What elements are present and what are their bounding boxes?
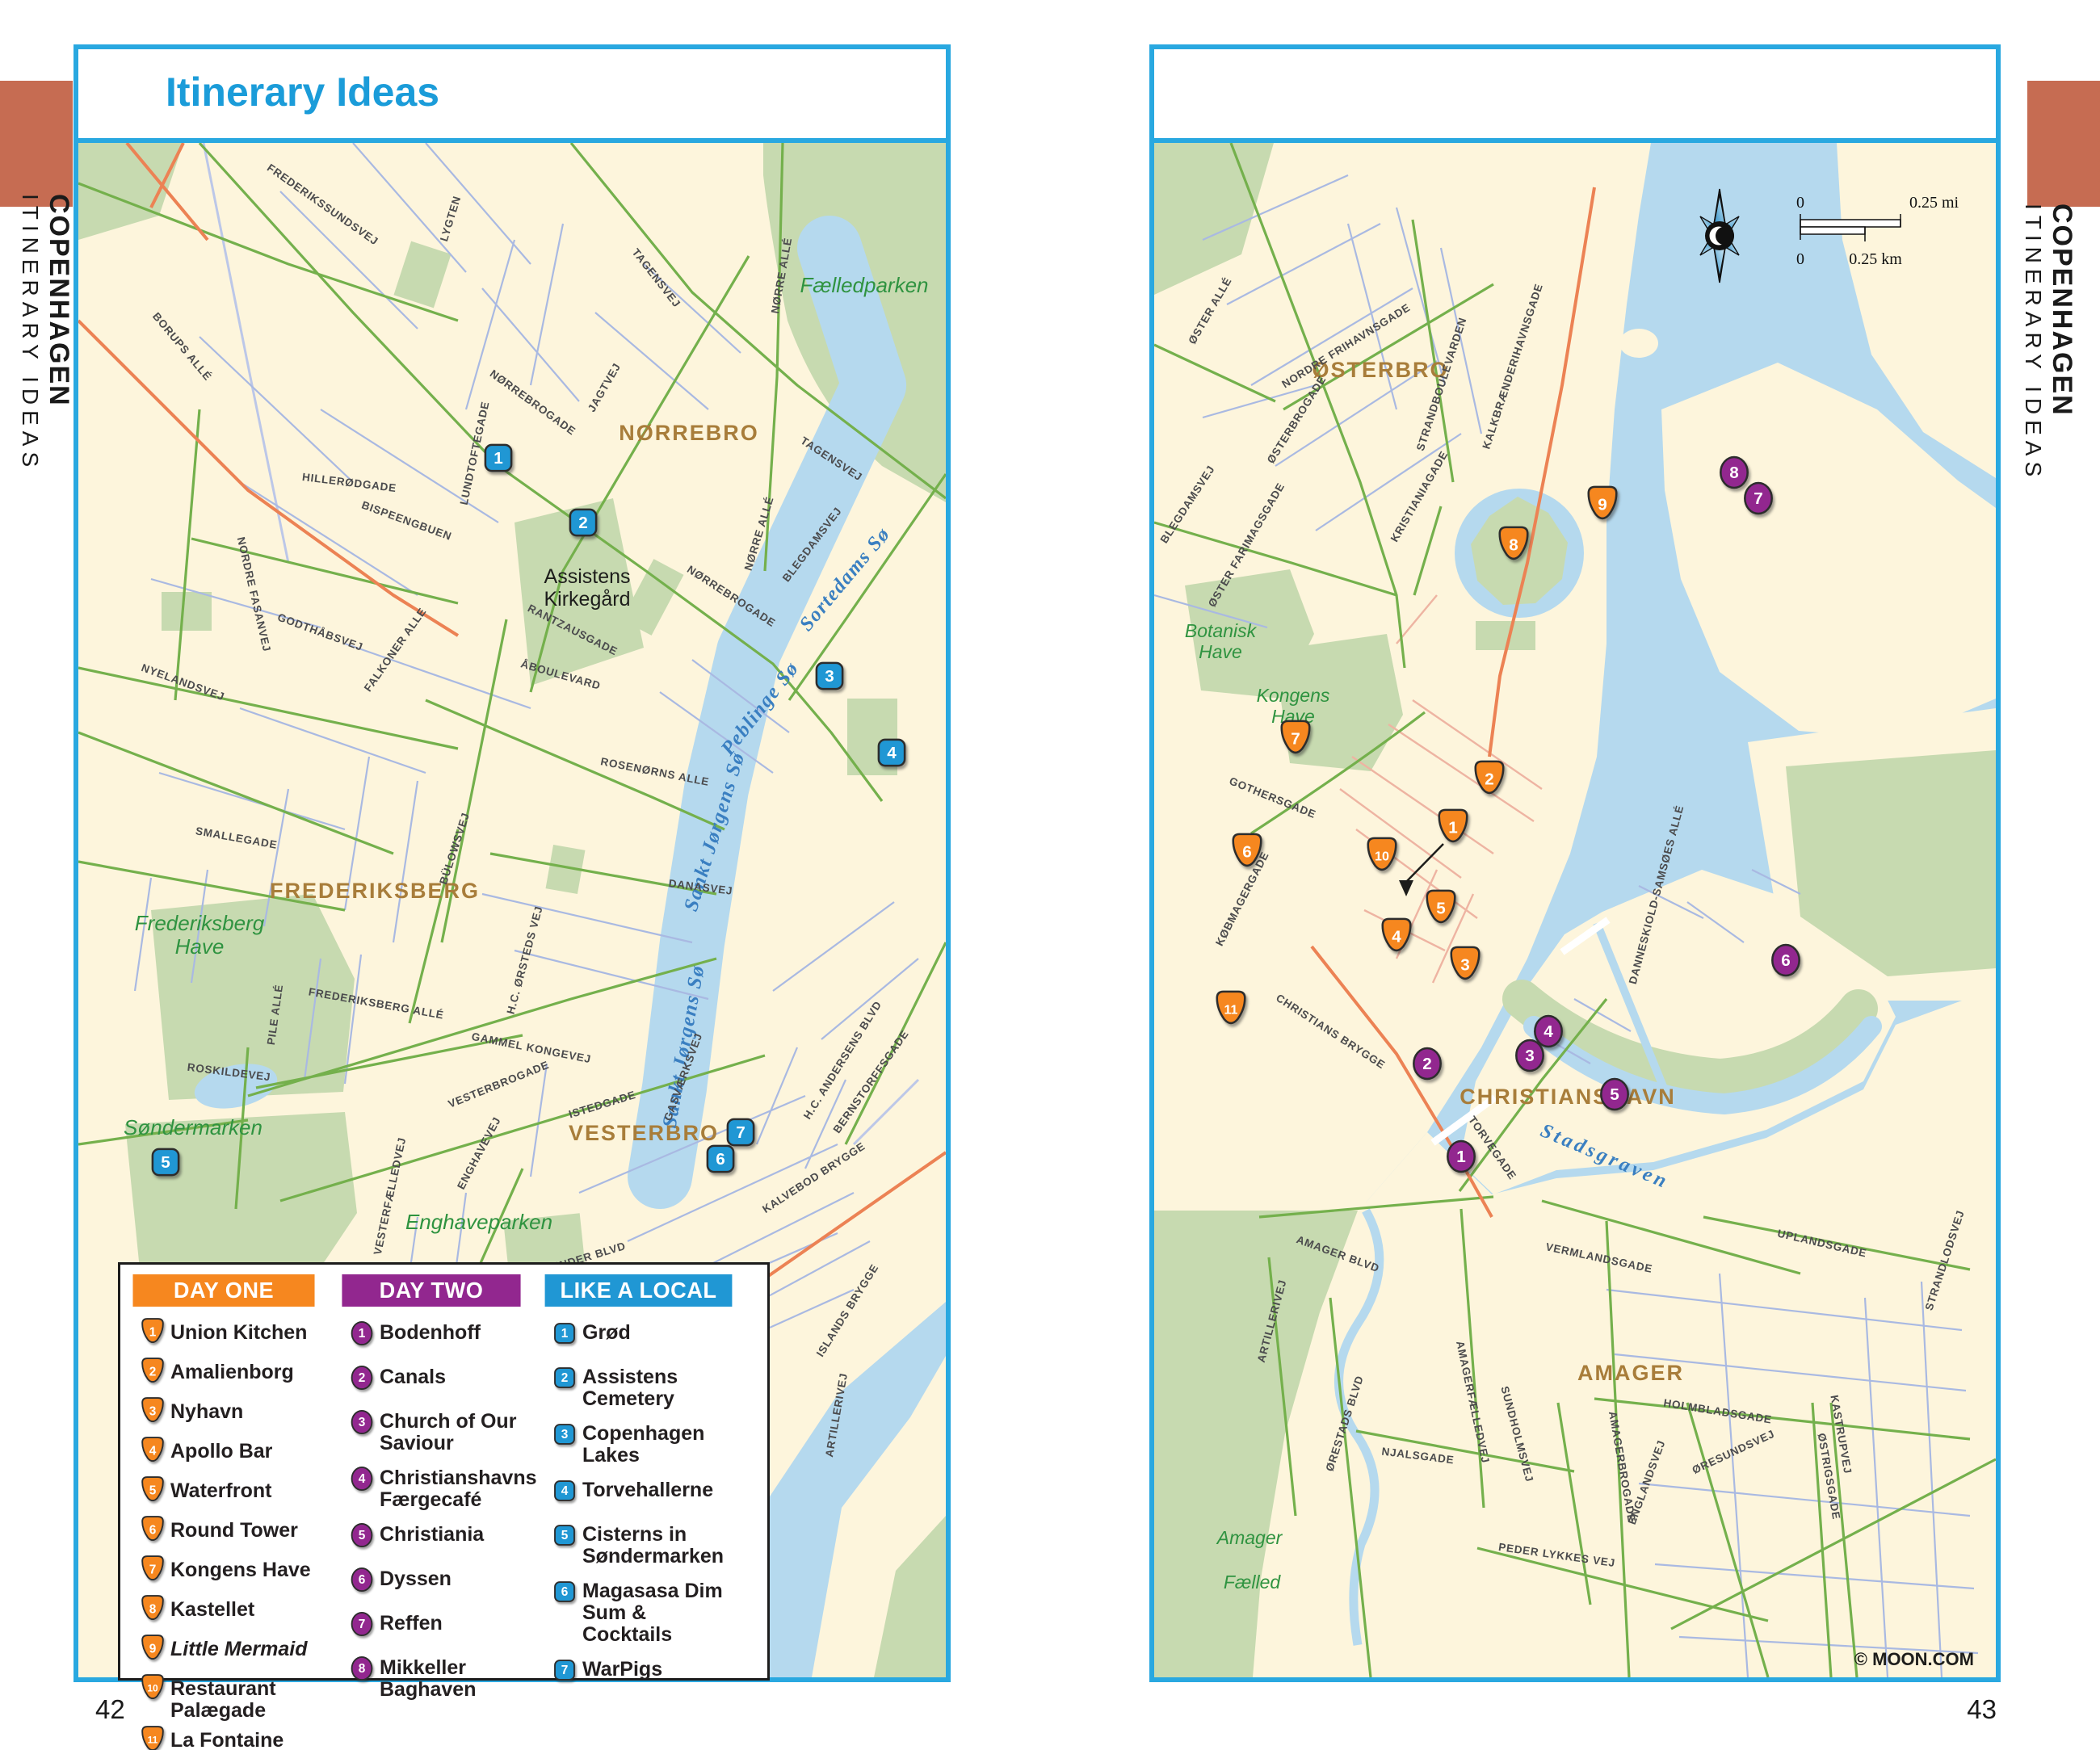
marker-day2-7: 7: [352, 1613, 372, 1635]
left-edge-tab: [0, 81, 73, 207]
left-caption-section: ITINERARY IDEAS: [17, 194, 44, 472]
svg-text:11: 11: [1224, 1002, 1237, 1017]
legend-item: 3Nyhavn: [138, 1395, 317, 1433]
right-page-frame: ØSTERBROCHRISTIANSHAVNAMAGERBotaniskHave…: [1149, 44, 2001, 1682]
map-label-place: AssistensKirkegård: [544, 565, 631, 611]
legend-marker-day1-icon: 9: [138, 1634, 170, 1670]
legend-column-day1: DAY ONE1Union Kitchen2Amalienborg3Nyhavn…: [130, 1274, 317, 1672]
right-page-titleband: [1154, 49, 1996, 143]
marker-day2-6: 6: [352, 1568, 372, 1591]
marker-local-6: 6: [555, 1582, 574, 1601]
legend-item: 7Kongens Have: [138, 1554, 317, 1591]
legend-marker-local-icon: 3: [550, 1418, 582, 1454]
map-shape: [162, 592, 212, 631]
legend-item: 2Assistens Cemetery: [550, 1361, 735, 1410]
svg-text:5: 5: [1610, 1085, 1619, 1104]
page-title: Itinerary Ideas: [166, 69, 439, 115]
right-caption-city: COPENHAGEN: [2047, 204, 2077, 482]
legend-marker-day2-icon: 1: [347, 1317, 380, 1353]
svg-text:3: 3: [561, 1428, 569, 1442]
svg-text:11: 11: [148, 1735, 158, 1746]
scale-km-label: 0.25 km: [1849, 250, 1902, 268]
right-edge-caption: COPENHAGEN ITINERARY IDEAS: [2020, 204, 2077, 482]
svg-text:4: 4: [1392, 928, 1401, 946]
legend-item-label: Assistens Cemetery: [582, 1361, 735, 1410]
legend-items-day2: 1Bodenhoff2Canals3Church of Our Saviour4…: [339, 1307, 523, 1701]
legend-item-label: Waterfront: [170, 1475, 271, 1502]
svg-text:5: 5: [359, 1529, 366, 1542]
legend-marker-day2-icon: 5: [347, 1519, 380, 1555]
svg-text:4: 4: [359, 1472, 366, 1486]
svg-text:3: 3: [149, 1404, 157, 1418]
legend-item: 1Grød: [550, 1316, 735, 1353]
svg-text:9: 9: [149, 1642, 157, 1656]
legend-item: 6Dyssen: [347, 1563, 523, 1600]
svg-text:7: 7: [561, 1664, 569, 1677]
marker-local-7: 7: [728, 1119, 754, 1145]
svg-text:4: 4: [1543, 1022, 1553, 1041]
marker-local-2: 2: [555, 1368, 574, 1387]
legend-marker-day2-icon: 2: [347, 1362, 380, 1398]
map-label-parksm: Fælled: [1224, 1572, 1282, 1593]
svg-text:8: 8: [1729, 464, 1739, 482]
map-label-park: Enghaveparken: [405, 1210, 552, 1234]
marker-local-4: 4: [555, 1481, 574, 1500]
map-shape: [1476, 621, 1535, 650]
legend-item: 5Waterfront: [138, 1475, 317, 1512]
marker-day1-6: 6: [142, 1517, 163, 1540]
legend-item: 1Bodenhoff: [347, 1316, 523, 1353]
legend-marker-day1-icon: 10: [138, 1673, 170, 1710]
legend-item-label: Union Kitchen: [170, 1316, 307, 1344]
svg-text:8: 8: [1509, 536, 1518, 555]
marker-day1-11: 11: [142, 1727, 163, 1750]
svg-text:4: 4: [887, 744, 897, 762]
svg-text:5: 5: [149, 1484, 157, 1497]
left-caption-city: COPENHAGEN: [44, 194, 74, 472]
scale-mi-label: 0.25 mi: [1909, 194, 1959, 212]
legend-item: 4Torvehallerne: [550, 1474, 735, 1511]
marker-day2-5: 5: [1601, 1079, 1627, 1110]
svg-text:3: 3: [359, 1416, 366, 1429]
svg-text:10: 10: [1375, 849, 1389, 863]
legend-item: 3Copenhagen Lakes: [550, 1417, 735, 1467]
legend-item-label: Torvehallerne: [582, 1474, 713, 1501]
legend-item: 6Round Tower: [138, 1514, 317, 1551]
svg-text:9: 9: [1598, 496, 1607, 514]
svg-text:7: 7: [736, 1123, 745, 1142]
svg-text:5: 5: [1436, 900, 1446, 918]
legend-item-label: Bodenhoff: [380, 1316, 481, 1344]
legend-item: 7Reffen: [347, 1607, 523, 1644]
legend-items-day1: 1Union Kitchen2Amalienborg3Nyhavn4Apollo…: [130, 1307, 317, 1750]
legend-item-label: Canals: [380, 1361, 446, 1388]
marker-day2-6: 6: [1772, 945, 1799, 976]
legend-header-day1: DAY ONE: [132, 1274, 314, 1307]
page-number-right: 43: [1948, 1694, 1997, 1725]
svg-text:10: 10: [147, 1683, 158, 1694]
legend-item-label: Christiania: [380, 1518, 484, 1546]
legend-marker-day2-icon: 7: [347, 1608, 380, 1644]
legend-item: 8Kastellet: [138, 1593, 317, 1630]
map-label-district: VESTERBRO: [569, 1121, 719, 1145]
svg-text:6: 6: [359, 1573, 366, 1587]
map-right-svg: ØSTERBROCHRISTIANSHAVNAMAGERBotaniskHave…: [1154, 143, 1996, 1677]
legend-marker-local-icon: 4: [550, 1475, 582, 1511]
marker-local-7: 7: [555, 1660, 574, 1680]
marker-local-6: 6: [708, 1146, 733, 1172]
legend-item-label: Nyhavn: [170, 1395, 243, 1423]
marker-day1-10: 10: [142, 1675, 163, 1698]
legend-item: 9Little Mermaid: [138, 1633, 317, 1670]
legend-column-day2: DAY TWO1Bodenhoff2Canals3Church of Our S…: [339, 1274, 523, 1672]
legend-item: 4Apollo Bar: [138, 1435, 317, 1472]
right-caption-section: ITINERARY IDEAS: [2020, 204, 2047, 482]
legend-marker-day2-icon: 3: [347, 1406, 380, 1442]
svg-text:7: 7: [359, 1618, 366, 1631]
marker-local-5: 5: [153, 1149, 178, 1175]
legend-item: 2Canals: [347, 1361, 523, 1398]
svg-text:3: 3: [1525, 1047, 1535, 1065]
legend-item-label: Grød: [582, 1316, 631, 1344]
legend-item: 1Union Kitchen: [138, 1316, 317, 1353]
svg-text:8: 8: [359, 1662, 366, 1676]
svg-text:6: 6: [1781, 951, 1791, 970]
left-page-titleband: Itinerary Ideas: [78, 49, 946, 143]
legend-marker-local-icon: 6: [550, 1576, 582, 1612]
legend-marker-day1-icon: 2: [138, 1357, 170, 1393]
legend-marker-day1-icon: 5: [138, 1475, 170, 1512]
svg-text:2: 2: [578, 514, 588, 532]
legend-item-label: Magasasa Dim Sum & Cocktails: [582, 1575, 735, 1646]
legend-header-local: LIKE A LOCAL: [545, 1274, 733, 1307]
marker-day1-4: 4: [142, 1437, 163, 1461]
marker-day2-4: 4: [1535, 1016, 1561, 1047]
legend-marker-day1-icon: 3: [138, 1396, 170, 1433]
svg-text:3: 3: [825, 667, 834, 686]
svg-text:1: 1: [1448, 819, 1458, 837]
marker-day2-2: 2: [1413, 1048, 1440, 1079]
marker-day1-1: 1: [142, 1319, 163, 1342]
scale-zero-mi: 0: [1796, 194, 1804, 212]
marker-day2-5: 5: [352, 1524, 372, 1546]
legend-column-local: LIKE A LOCAL1Grød2Assistens Cemetery3Cop…: [542, 1274, 735, 1672]
svg-text:6: 6: [1242, 843, 1252, 862]
marker-day2-8: 8: [352, 1657, 372, 1680]
marker-local-3: 3: [817, 663, 842, 689]
map-label-park: Fælledparken: [800, 273, 929, 297]
svg-text:8: 8: [149, 1602, 157, 1616]
legend-marker-local-icon: 1: [550, 1317, 582, 1353]
svg-text:1: 1: [1456, 1148, 1466, 1166]
legend-marker-day1-icon: 4: [138, 1436, 170, 1472]
legend-marker-day1-icon: 1: [138, 1317, 170, 1353]
legend-item-label: Apollo Bar: [170, 1435, 272, 1463]
svg-text:2: 2: [561, 1371, 569, 1385]
legend-marker-day1-icon: 6: [138, 1515, 170, 1551]
legend-item-label: Kastellet: [170, 1593, 254, 1621]
marker-day1-2: 2: [142, 1358, 163, 1382]
marker-local-2: 2: [570, 510, 596, 535]
marker-local-5: 5: [555, 1525, 574, 1545]
legend-items-local: 1Grød2Assistens Cemetery3Copenhagen Lake…: [542, 1307, 735, 1690]
map-label-district: CHRISTIANSHAVN: [1459, 1085, 1676, 1109]
map-label-parksm: Amager: [1216, 1527, 1283, 1548]
legend-item-label: Cisterns in Søndermarken: [582, 1518, 735, 1567]
marker-day2-2: 2: [352, 1366, 372, 1389]
legend-item-label: Kongens Have: [170, 1554, 311, 1581]
legend-item: 2Amalienborg: [138, 1356, 317, 1393]
legend-item: 8Mikkeller Baghaven: [347, 1651, 523, 1701]
legend-marker-local-icon: 5: [550, 1519, 582, 1555]
left-edge-caption: COPENHAGEN ITINERARY IDEAS: [17, 194, 74, 472]
marker-local-1: 1: [555, 1324, 574, 1343]
svg-text:5: 5: [561, 1529, 569, 1542]
svg-text:7: 7: [149, 1563, 157, 1576]
marker-day1-9: 9: [142, 1635, 163, 1659]
svg-text:6: 6: [716, 1150, 725, 1169]
map-right: ØSTERBROCHRISTIANSHAVNAMAGERBotaniskHave…: [1154, 143, 1996, 1677]
svg-text:7: 7: [1753, 489, 1763, 508]
legend-item-label: Little Mermaid: [170, 1633, 307, 1660]
map-shape: [1619, 329, 1658, 358]
marker-day1-5: 5: [142, 1477, 163, 1500]
legend-item: 6Magasasa Dim Sum & Cocktails: [550, 1575, 735, 1646]
marker-local-1: 1: [485, 445, 511, 471]
svg-text:5: 5: [161, 1153, 170, 1172]
map-label-credit: © MOON.COM: [1854, 1649, 1974, 1669]
itinerary-legend: DAY ONE1Union Kitchen2Amalienborg3Nyhavn…: [118, 1262, 770, 1681]
legend-item-label: La Fontaine: [170, 1724, 283, 1750]
legend-item: 10Restaurant Palægade: [138, 1672, 317, 1722]
legend-marker-local-icon: 2: [550, 1362, 582, 1398]
marker-day2-1: 1: [352, 1322, 372, 1345]
marker-day2-7: 7: [1745, 483, 1771, 514]
marker-day1-8: 8: [142, 1596, 163, 1619]
legend-marker-day2-icon: 4: [347, 1463, 380, 1499]
svg-text:6: 6: [149, 1523, 157, 1537]
legend-item: 3Church of Our Saviour: [347, 1405, 523, 1454]
svg-text:4: 4: [561, 1484, 569, 1498]
legend-item: 5Cisterns in Søndermarken: [550, 1518, 735, 1567]
svg-text:7: 7: [1291, 730, 1300, 749]
svg-text:1: 1: [359, 1327, 366, 1341]
svg-text:1: 1: [149, 1325, 157, 1339]
marker-day2-3: 3: [352, 1411, 372, 1433]
legend-marker-day2-icon: 6: [347, 1563, 380, 1600]
legend-item: 7WarPigs: [550, 1653, 735, 1690]
marker-local-3: 3: [555, 1425, 574, 1444]
legend-item-label: Reffen: [380, 1607, 443, 1635]
legend-item-label: Round Tower: [170, 1514, 298, 1542]
svg-text:2: 2: [1422, 1055, 1432, 1073]
svg-text:4: 4: [149, 1444, 157, 1458]
marker-day2-1: 1: [1447, 1141, 1474, 1172]
legend-item-label: Church of Our Saviour: [380, 1405, 523, 1454]
legend-item: 4Christianshavns Færgecafé: [347, 1462, 523, 1511]
legend-header-day2: DAY TWO: [342, 1274, 520, 1307]
marker-day1-7: 7: [142, 1556, 163, 1580]
legend-marker-local-icon: 7: [550, 1654, 582, 1690]
legend-item-label: Christianshavns Færgecafé: [380, 1462, 537, 1511]
map-label-park: Søndermarken: [124, 1115, 262, 1139]
legend-item-label: Dyssen: [380, 1563, 451, 1590]
marker-day2-8: 8: [1720, 457, 1747, 488]
svg-text:6: 6: [561, 1585, 569, 1599]
legend-item-label: Restaurant Palægade: [170, 1672, 317, 1722]
book-spread: COPENHAGEN ITINERARY IDEAS COPENHAGEN IT…: [0, 0, 2100, 1750]
legend-marker-day1-icon: 8: [138, 1594, 170, 1630]
svg-text:1: 1: [561, 1327, 569, 1341]
marker-day1-3: 3: [142, 1398, 163, 1421]
svg-text:2: 2: [359, 1371, 366, 1385]
legend-marker-day1-icon: 7: [138, 1555, 170, 1591]
map-label-district: AMAGER: [1577, 1361, 1684, 1385]
svg-text:2: 2: [149, 1365, 157, 1379]
legend-marker-day2-icon: 8: [347, 1652, 380, 1689]
marker-day2-3: 3: [1516, 1040, 1543, 1071]
right-edge-tab: [2027, 81, 2100, 207]
legend-item-label: Copenhagen Lakes: [582, 1417, 735, 1467]
legend-item-label: Amalienborg: [170, 1356, 294, 1383]
svg-text:2: 2: [1485, 770, 1494, 789]
marker-day2-4: 4: [352, 1467, 372, 1490]
page-number-left: 42: [95, 1694, 125, 1725]
legend-item: 5Christiania: [347, 1518, 523, 1555]
marker-local-4: 4: [879, 740, 905, 766]
legend-item: 11La Fontaine: [138, 1724, 317, 1750]
legend-item-label: Mikkeller Baghaven: [380, 1651, 523, 1701]
svg-text:1: 1: [493, 449, 503, 468]
map-label-district: NØRREBRO: [619, 421, 759, 445]
scale-zero-km: 0: [1796, 250, 1804, 268]
legend-marker-day1-icon: 11: [138, 1725, 170, 1750]
svg-text:3: 3: [1460, 956, 1470, 975]
legend-item-label: WarPigs: [582, 1653, 662, 1681]
